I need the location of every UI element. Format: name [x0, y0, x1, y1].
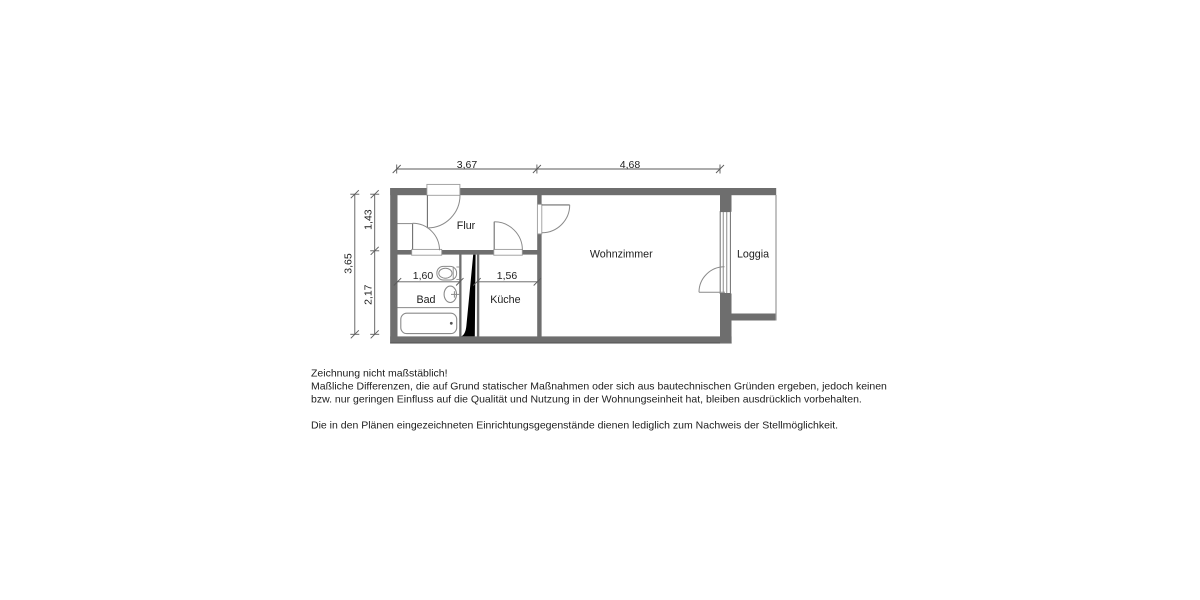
- svg-text:3,67: 3,67: [457, 159, 478, 171]
- svg-text:3,65: 3,65: [343, 253, 355, 274]
- svg-text:Die in den Plänen eingezeichne: Die in den Plänen eingezeichneten Einric…: [311, 420, 838, 432]
- svg-text:4,68: 4,68: [620, 159, 641, 171]
- svg-text:Flur: Flur: [457, 220, 476, 232]
- svg-text:bzw. nur geringen Einfluss auf: bzw. nur geringen Einfluss auf die Quali…: [311, 394, 862, 406]
- svg-text:1,60: 1,60: [413, 270, 434, 282]
- svg-text:2,17: 2,17: [362, 284, 374, 305]
- svg-text:Wohnzimmer: Wohnzimmer: [590, 249, 653, 261]
- svg-text:Zeichnung nicht maßstäblich!: Zeichnung nicht maßstäblich!: [311, 368, 448, 380]
- svg-text:Bad: Bad: [416, 294, 435, 306]
- svg-text:1,43: 1,43: [362, 209, 374, 230]
- svg-text:Maßliche Differenzen, die auf: Maßliche Differenzen, die auf Grund stat…: [311, 381, 887, 393]
- svg-text:Loggia: Loggia: [737, 248, 769, 260]
- svg-text:Küche: Küche: [490, 294, 520, 306]
- svg-text:1,56: 1,56: [497, 270, 518, 282]
